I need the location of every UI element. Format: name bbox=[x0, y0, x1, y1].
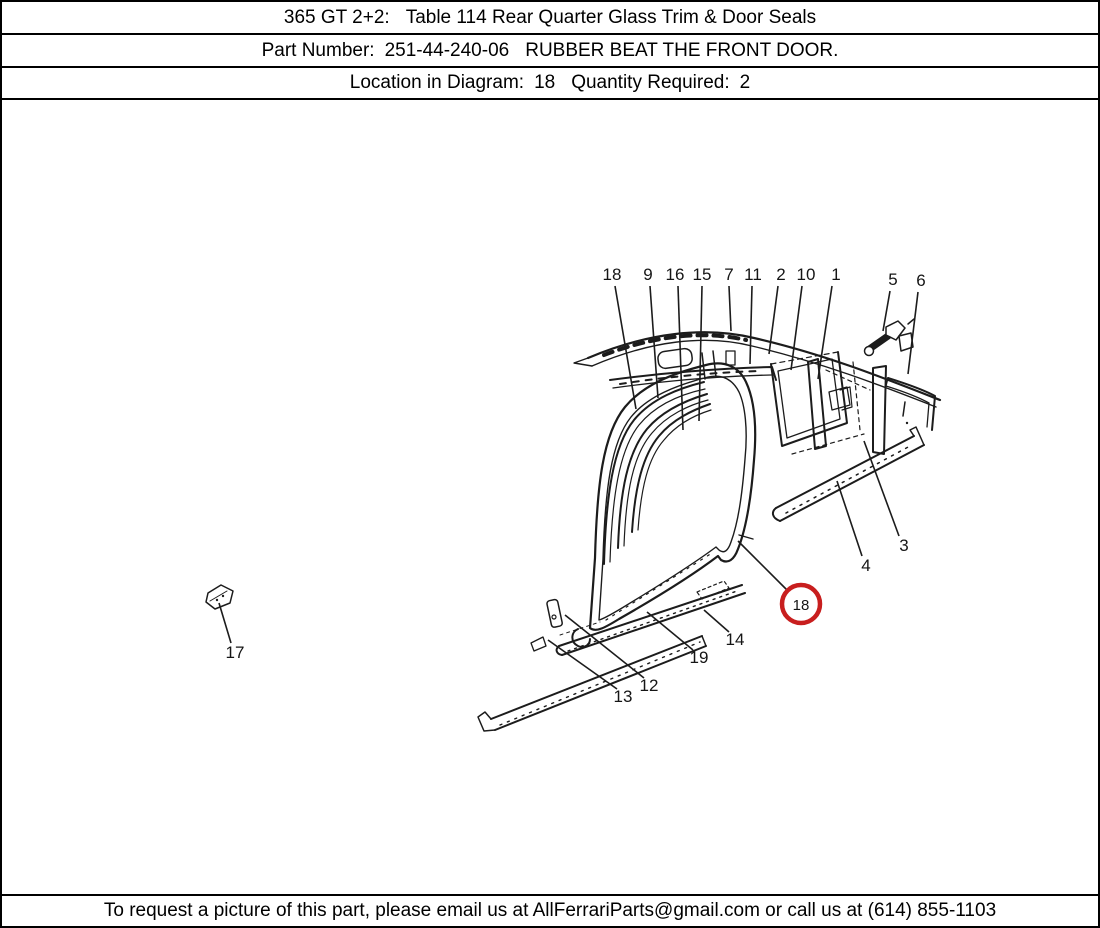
callout-leader-1 bbox=[818, 286, 832, 379]
title-bar: 365 GT 2+2:Table 114 Rear Quarter Glass … bbox=[2, 2, 1098, 35]
model-name: 365 GT 2+2: bbox=[284, 7, 390, 29]
callout-label-13: 13 bbox=[614, 687, 633, 706]
callout-label-10: 10 bbox=[797, 265, 816, 284]
callout-label-9: 9 bbox=[643, 265, 652, 284]
callout-label-19: 19 bbox=[690, 648, 709, 667]
quarter-glass-trim-strips bbox=[604, 382, 711, 564]
table-title: Table 114 Rear Quarter Glass Trim & Door… bbox=[406, 7, 816, 29]
callout-label-7: 7 bbox=[724, 265, 733, 284]
callout-label-18: 18 bbox=[603, 265, 622, 284]
callout-label-2: 2 bbox=[776, 265, 785, 284]
part-description: RUBBER BEAT THE FRONT DOOR. bbox=[525, 40, 838, 62]
parts-diagram: 189161571121015634171312191418 bbox=[2, 2, 1098, 926]
callout-label-5: 5 bbox=[888, 270, 897, 289]
callout-leader-7 bbox=[729, 286, 731, 331]
parts-page: 189161571121015634171312191418 365 GT 2+… bbox=[0, 0, 1100, 928]
callout-leader-4 bbox=[837, 481, 862, 556]
sill-molding bbox=[557, 581, 745, 655]
part-number-bar: Part Number:251-44-240-06RUBBER BEAT THE… bbox=[2, 35, 1098, 68]
location-value: 18 bbox=[534, 72, 555, 94]
part-number-value: 251-44-240-06 bbox=[385, 40, 510, 62]
callout-label-16: 16 bbox=[666, 265, 685, 284]
callout-leader-11 bbox=[750, 286, 752, 364]
location-bar: Location in Diagram:18Quantity Required:… bbox=[2, 68, 1098, 100]
callout-leader-17 bbox=[219, 603, 231, 643]
callout-leader-16 bbox=[678, 286, 683, 430]
callout-label-4: 4 bbox=[861, 556, 870, 575]
callout-label-3: 3 bbox=[899, 536, 908, 555]
callout-label-15: 15 bbox=[693, 265, 712, 284]
callout-label-12: 12 bbox=[640, 676, 659, 695]
highlight-number: 18 bbox=[793, 597, 810, 614]
highlight-leader bbox=[738, 541, 788, 591]
contact-bar: To request a picture of this part, pleas… bbox=[2, 894, 1098, 926]
callout-leader-14 bbox=[704, 610, 729, 632]
contact-text: To request a picture of this part, pleas… bbox=[104, 900, 996, 922]
part-number-label: Part Number: bbox=[262, 40, 375, 62]
quantity-label: Quantity Required: bbox=[571, 72, 729, 94]
diagram-artwork bbox=[206, 319, 940, 731]
callout-label-1: 1 bbox=[831, 265, 840, 284]
latch-hardware bbox=[865, 319, 915, 356]
callout-label-14: 14 bbox=[726, 630, 745, 649]
quantity-value: 2 bbox=[740, 72, 751, 94]
callout-label-6: 6 bbox=[916, 271, 925, 290]
callout-label-11: 11 bbox=[744, 265, 762, 284]
rocker-strip bbox=[478, 636, 706, 731]
location-label: Location in Diagram: bbox=[350, 72, 524, 94]
callout-label-17: 17 bbox=[226, 643, 245, 662]
